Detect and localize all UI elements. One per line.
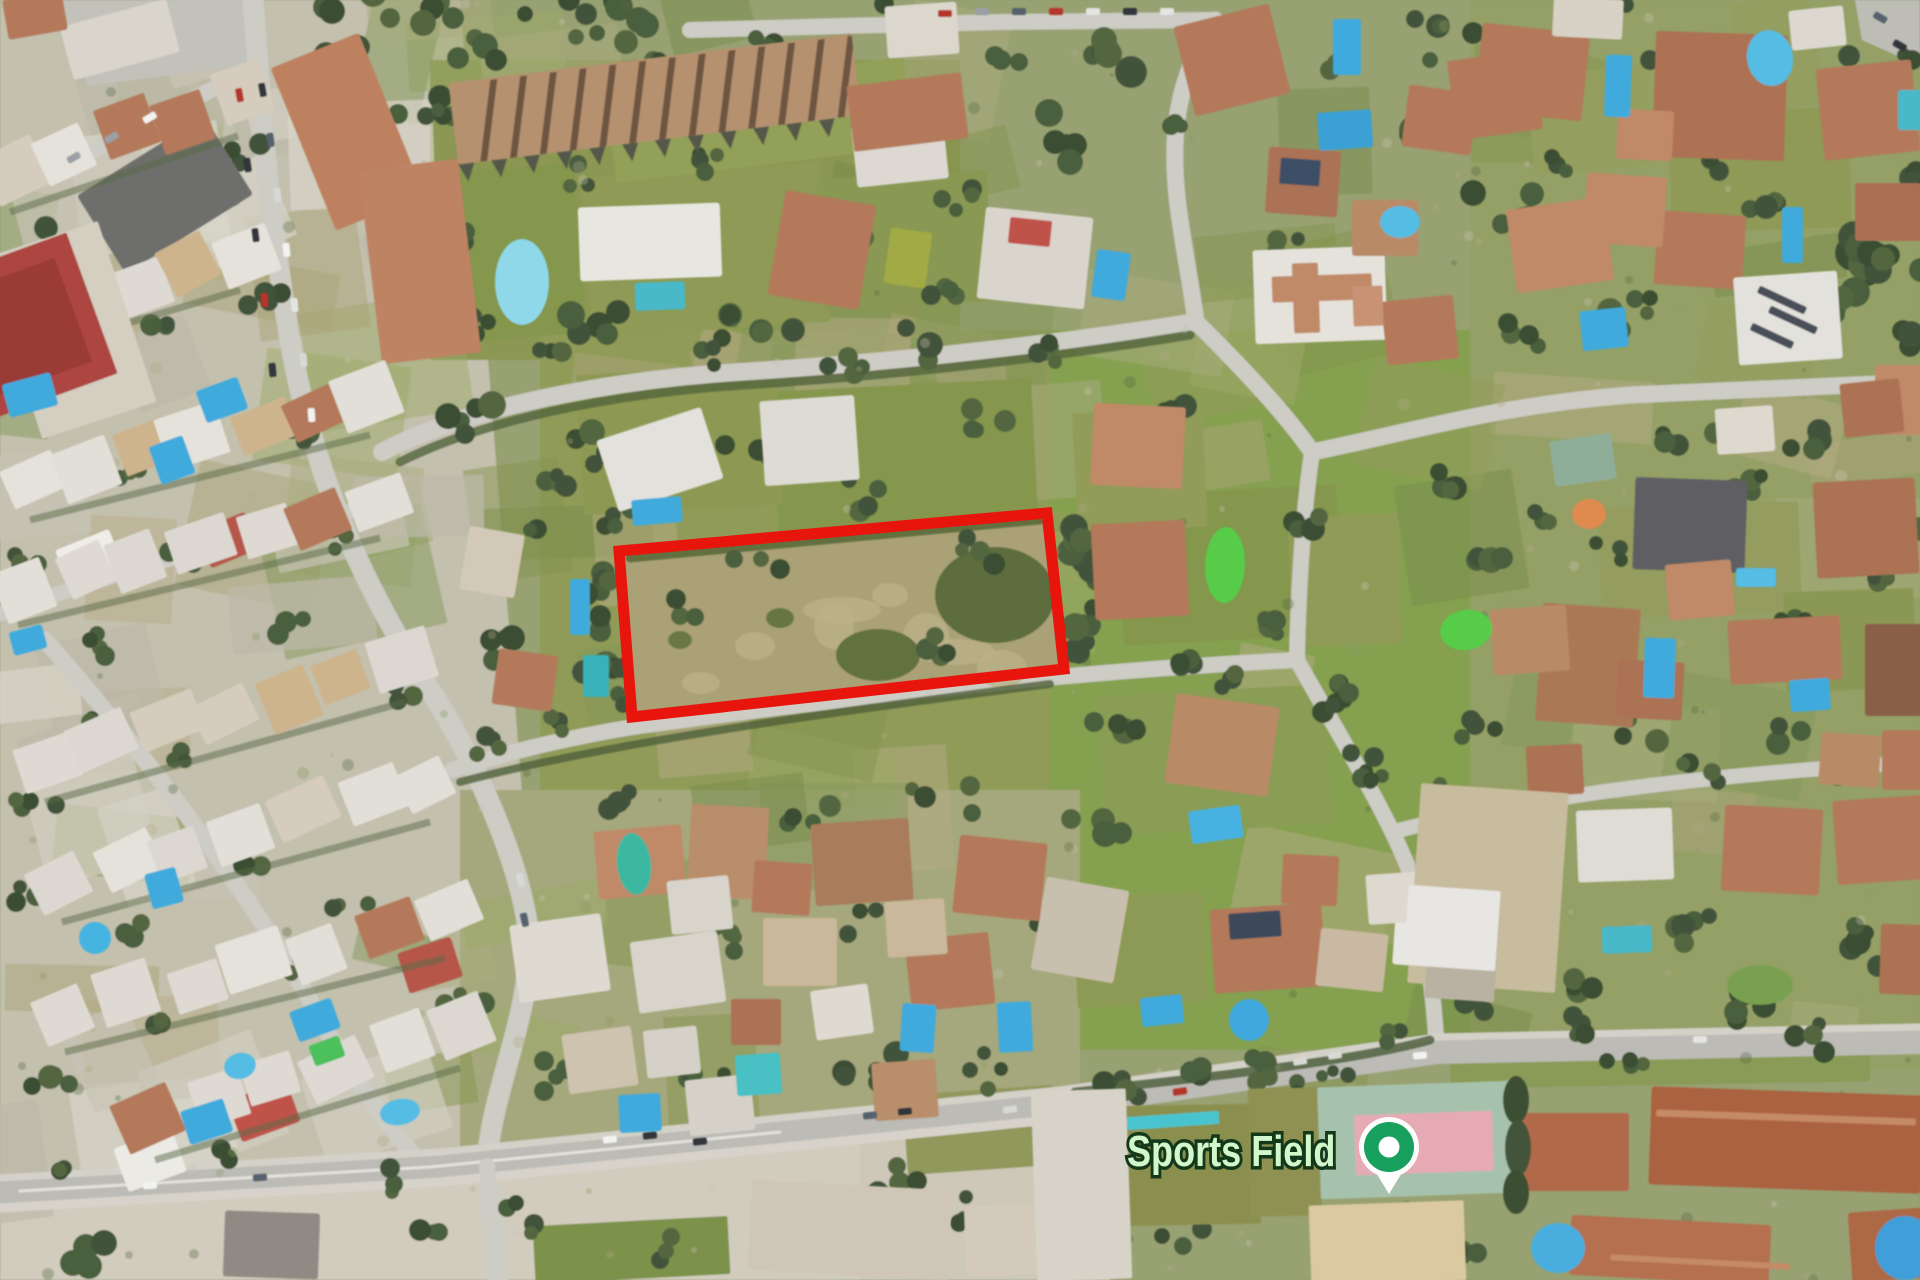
svg-text:Sports Field: Sports Field	[1127, 1127, 1335, 1176]
